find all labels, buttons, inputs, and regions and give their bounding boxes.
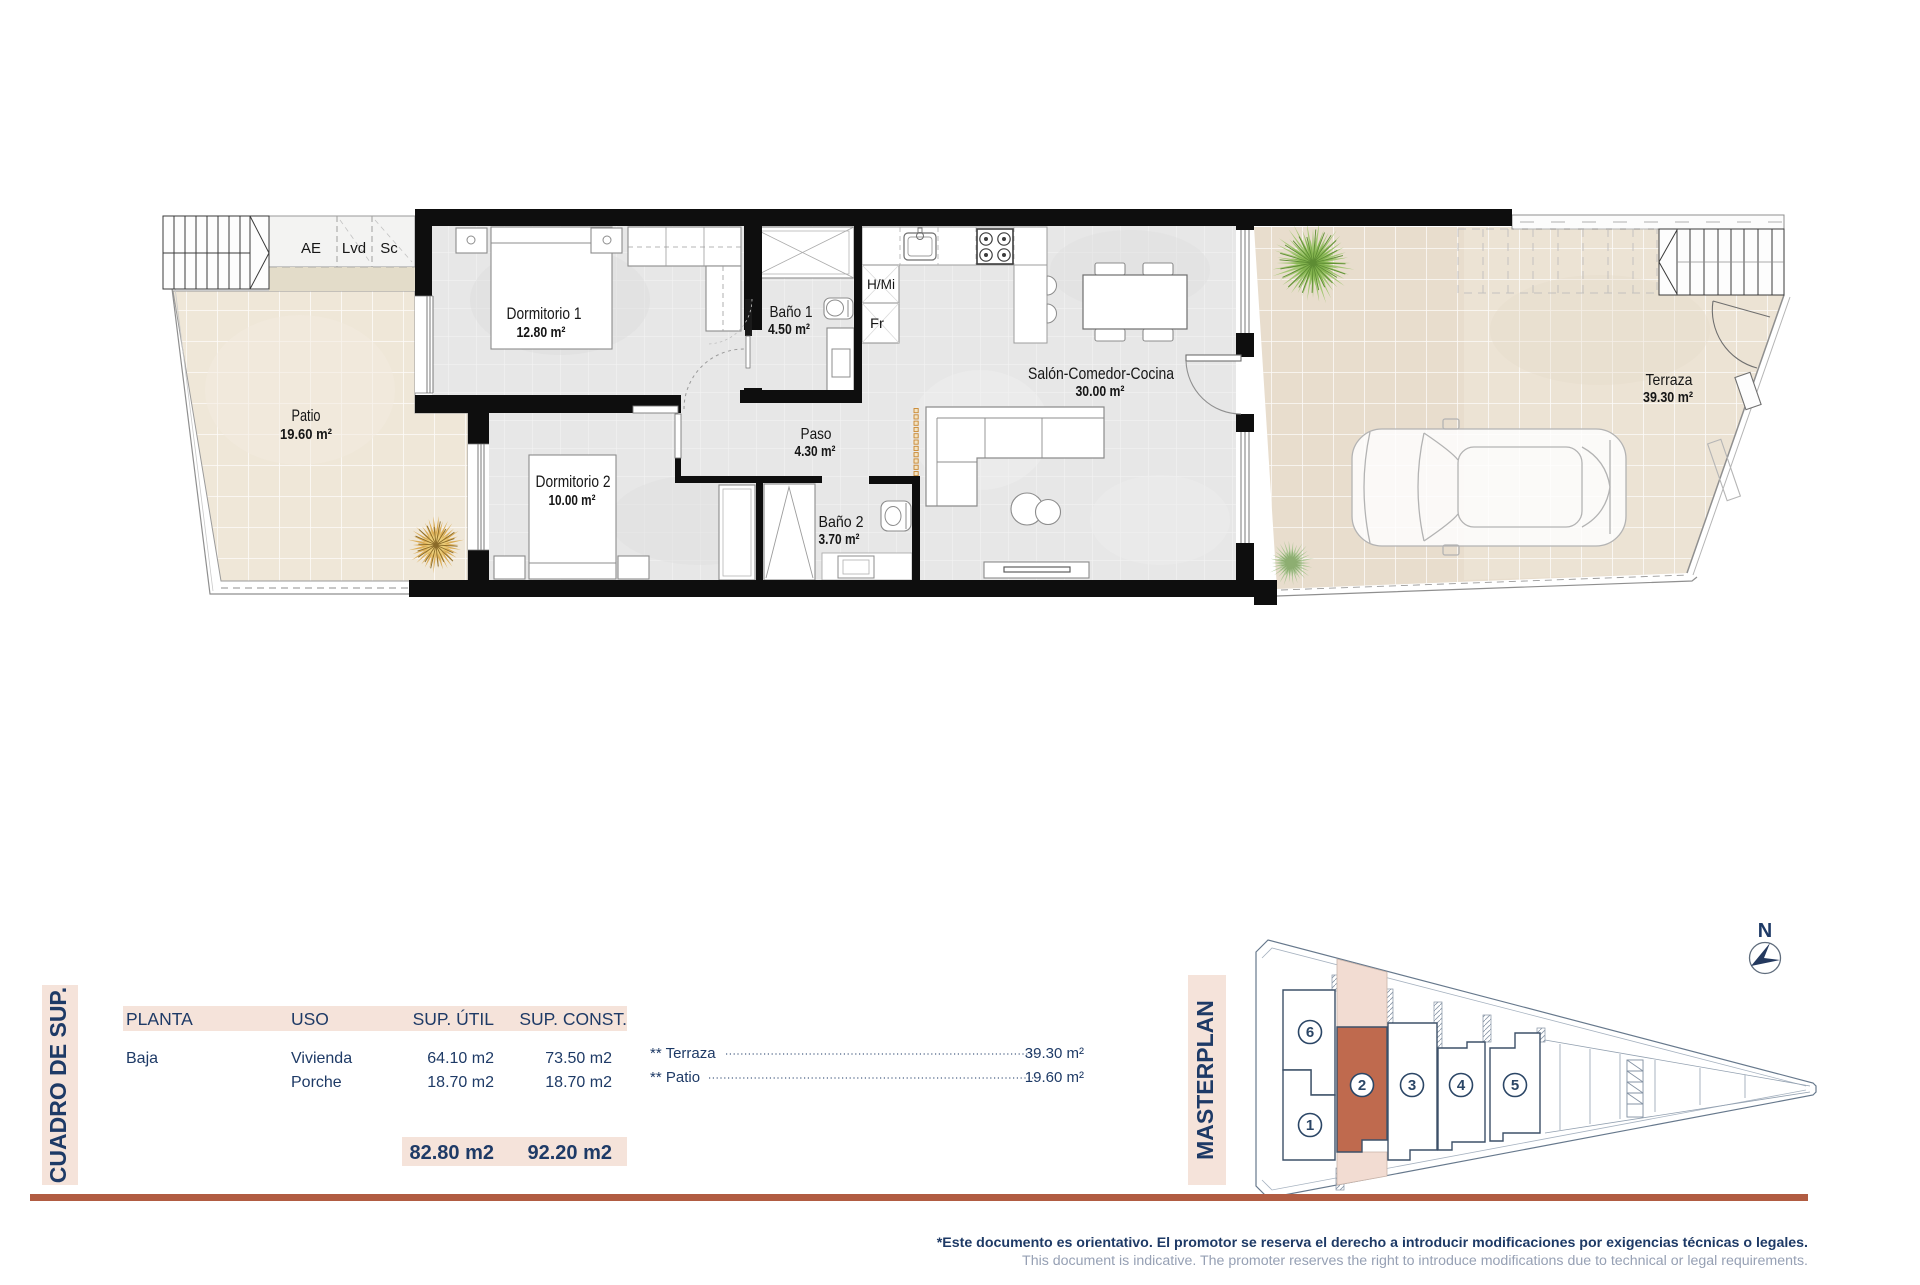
svg-text:4.30 m²: 4.30 m² xyxy=(795,443,836,460)
svg-text:SUP. CONST.: SUP. CONST. xyxy=(519,1009,627,1029)
svg-text:USO: USO xyxy=(291,1009,329,1029)
svg-text:2: 2 xyxy=(1358,1077,1366,1094)
svg-text:73.50 m2: 73.50 m2 xyxy=(545,1050,612,1067)
svg-text:6: 6 xyxy=(1306,1024,1314,1041)
svg-text:PLANTA: PLANTA xyxy=(126,1009,193,1029)
svg-text:Porche: Porche xyxy=(291,1074,342,1091)
svg-text:Patio: Patio xyxy=(292,407,321,425)
svg-text:3.70 m²: 3.70 m² xyxy=(819,531,860,548)
svg-text:5: 5 xyxy=(1511,1077,1519,1094)
svg-text:4.50 m²: 4.50 m² xyxy=(768,321,810,338)
svg-text:Vivienda: Vivienda xyxy=(291,1050,352,1067)
svg-text:10.00 m²: 10.00 m² xyxy=(549,492,596,509)
svg-text:1: 1 xyxy=(1306,1117,1314,1134)
svg-text:N: N xyxy=(1758,920,1772,942)
svg-text:CUADRO DE SUP.: CUADRO DE SUP. xyxy=(45,987,71,1183)
svg-text:Baja: Baja xyxy=(126,1050,158,1067)
svg-text:3: 3 xyxy=(1408,1077,1416,1094)
svg-text:Dormitorio 1: Dormitorio 1 xyxy=(507,304,582,323)
svg-text:19.60 m²: 19.60 m² xyxy=(280,426,332,443)
svg-text:*Este documento es orientativo: *Este documento es orientativo. El promo… xyxy=(937,1235,1808,1251)
svg-text:Terraza: Terraza xyxy=(1646,372,1693,389)
svg-text:Salón-Comedor-Cocina: Salón-Comedor-Cocina xyxy=(1028,365,1175,383)
svg-text:Lvd: Lvd xyxy=(342,240,366,257)
svg-text:4: 4 xyxy=(1457,1077,1466,1094)
svg-text:AE: AE xyxy=(301,240,321,257)
svg-text:18.70 m2: 18.70 m2 xyxy=(545,1074,612,1091)
svg-text:39.30 m²: 39.30 m² xyxy=(1025,1045,1084,1062)
svg-text:** Patio: ** Patio xyxy=(650,1069,700,1086)
svg-text:Baño 1: Baño 1 xyxy=(770,304,813,321)
svg-text:Sc: Sc xyxy=(380,240,398,257)
svg-text:SUP. ÚTIL: SUP. ÚTIL xyxy=(413,1008,495,1029)
svg-text:30.00 m²: 30.00 m² xyxy=(1076,383,1125,400)
svg-text:19.60 m²: 19.60 m² xyxy=(1025,1069,1084,1086)
svg-text:H/Mi: H/Mi xyxy=(867,277,895,292)
svg-text:18.70 m2: 18.70 m2 xyxy=(427,1074,494,1091)
svg-text:MASTERPLAN: MASTERPLAN xyxy=(1192,1000,1218,1160)
svg-text:82.80 m2: 82.80 m2 xyxy=(409,1142,494,1164)
svg-text:12.80 m²: 12.80 m² xyxy=(517,324,566,341)
svg-text:Dormitorio 2: Dormitorio 2 xyxy=(536,472,611,491)
svg-text:This document is indicative. T: This document is indicative. The promote… xyxy=(1022,1253,1808,1269)
svg-text:** Terraza: ** Terraza xyxy=(650,1045,716,1062)
svg-text:64.10 m2: 64.10 m2 xyxy=(427,1050,494,1067)
svg-text:Paso: Paso xyxy=(801,426,832,443)
svg-text:39.30 m²: 39.30 m² xyxy=(1643,389,1693,406)
svg-text:Baño 2: Baño 2 xyxy=(819,514,864,531)
svg-text:Fr: Fr xyxy=(870,316,885,331)
svg-text:92.20 m2: 92.20 m2 xyxy=(527,1142,612,1164)
